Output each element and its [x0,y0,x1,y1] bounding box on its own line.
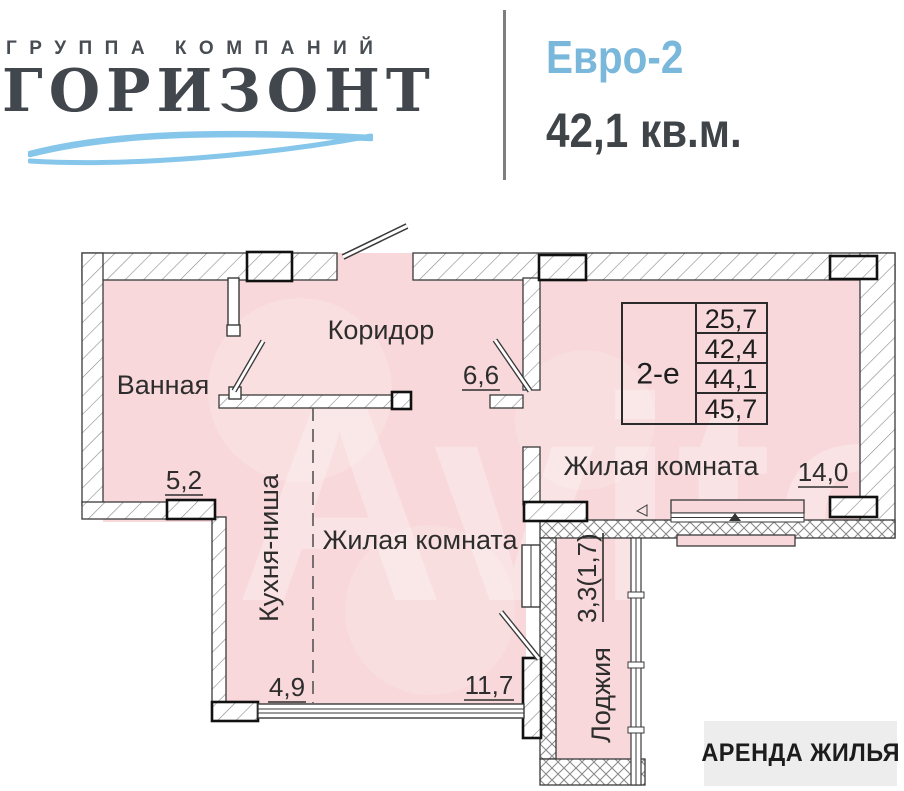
loggia-area: 3,3(1,7) [572,533,602,623]
wave-icon [28,126,373,170]
entrance-door [343,226,407,257]
living-room-2-area: 14,0 [798,457,849,487]
spec-table-value: 45,7 [705,394,758,424]
spec-table-value: 42,4 [705,334,758,364]
plan-type-title: Евро-2 [546,30,683,84]
bathroom-label: Ванная [117,370,209,400]
window-bottom-long [258,704,524,718]
company-name: ГОРИЗОНТ [2,56,436,125]
loggia-glazing [628,538,644,785]
window-loggia-side [522,545,540,607]
flyer-page: Avito [0,0,904,791]
total-area-title: 42,1 кв.м. [546,104,742,159]
spec-table-value: 25,7 [705,304,758,334]
living-room-2-label: Жилая комната [563,451,759,481]
kitchen-niche-label: Кухня-ниша [254,473,284,622]
header-divider [503,10,506,180]
rent-badge-label: АРЕНДА ЖИЛЬЯ [701,739,900,768]
living-room-1-label: Жилая комната [322,525,518,555]
bathroom-area: 5,2 [166,465,202,495]
living-room-1-area: 11,7 [465,670,514,700]
rent-badge: АРЕНДА ЖИЛЬЯ [704,721,897,786]
corridor-area: 6,6 [463,360,499,390]
corridor-label: Коридор [328,315,435,345]
spec-table-type: 2-е [636,358,679,391]
spec-table-value: 44,1 [705,364,758,394]
kitchen-niche-area: 4,9 [269,672,305,702]
loggia-label: Лоджия [586,647,616,743]
